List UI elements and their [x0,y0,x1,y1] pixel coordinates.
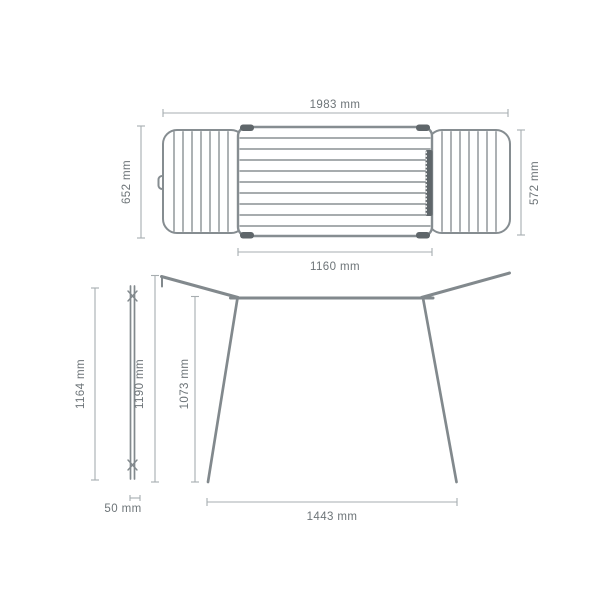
dimension-folded-depth: 50 mm [104,495,141,515]
left-depth-label: 652 mm [121,160,133,204]
diagram-canvas: 1983 mm 652 mm 572 mm [0,0,610,610]
corner-clamp-top-right [416,125,430,132]
corner-clamp-bottom-right [416,232,430,239]
right-depth-label: 572 mm [529,161,541,205]
right-leg [423,298,457,482]
inner-width-label: 1160 mm [310,261,360,273]
overall-width-label: 1983 mm [310,99,361,111]
central-panel [238,125,433,239]
left-leg [208,298,238,482]
dimension-base-width: 1443 mm [207,498,457,523]
right-wing [428,130,510,233]
base-width-label: 1443 mm [307,511,358,523]
corner-clamp-bottom-left [240,232,254,239]
corner-clamp-top-left [240,125,254,132]
folded-height-label: 1164 mm [75,359,87,409]
side-view-folded: 1164 mm 50 mm [75,286,142,515]
left-wing-arm [162,277,239,298]
top-view: 1983 mm 652 mm 572 mm [121,99,541,273]
dimension-right-depth: 572 mm [517,130,541,235]
rail-height-label: 1073 mm [179,359,191,410]
folded-depth-label: 50 mm [104,503,141,515]
dimension-overall-height: 1190 mm [134,276,159,483]
side-holder [426,150,433,216]
left-wing [163,130,245,233]
dimension-rail-height: 1073 mm [179,297,199,483]
dimension-inner-width: 1160 mm [238,248,432,273]
overall-height-label: 1190 mm [134,359,146,409]
dimension-folded-height: 1164 mm [75,288,99,480]
dimension-overall-width: 1983 mm [163,99,508,117]
dimension-left-depth: 652 mm [121,126,145,238]
right-wing-arm [422,273,510,298]
front-view: 1190 mm 1073 mm 1443 mm [134,273,510,523]
drying-rack-dimension-diagram: 1983 mm 652 mm 572 mm [0,0,610,610]
open-rack-outline [162,273,510,482]
